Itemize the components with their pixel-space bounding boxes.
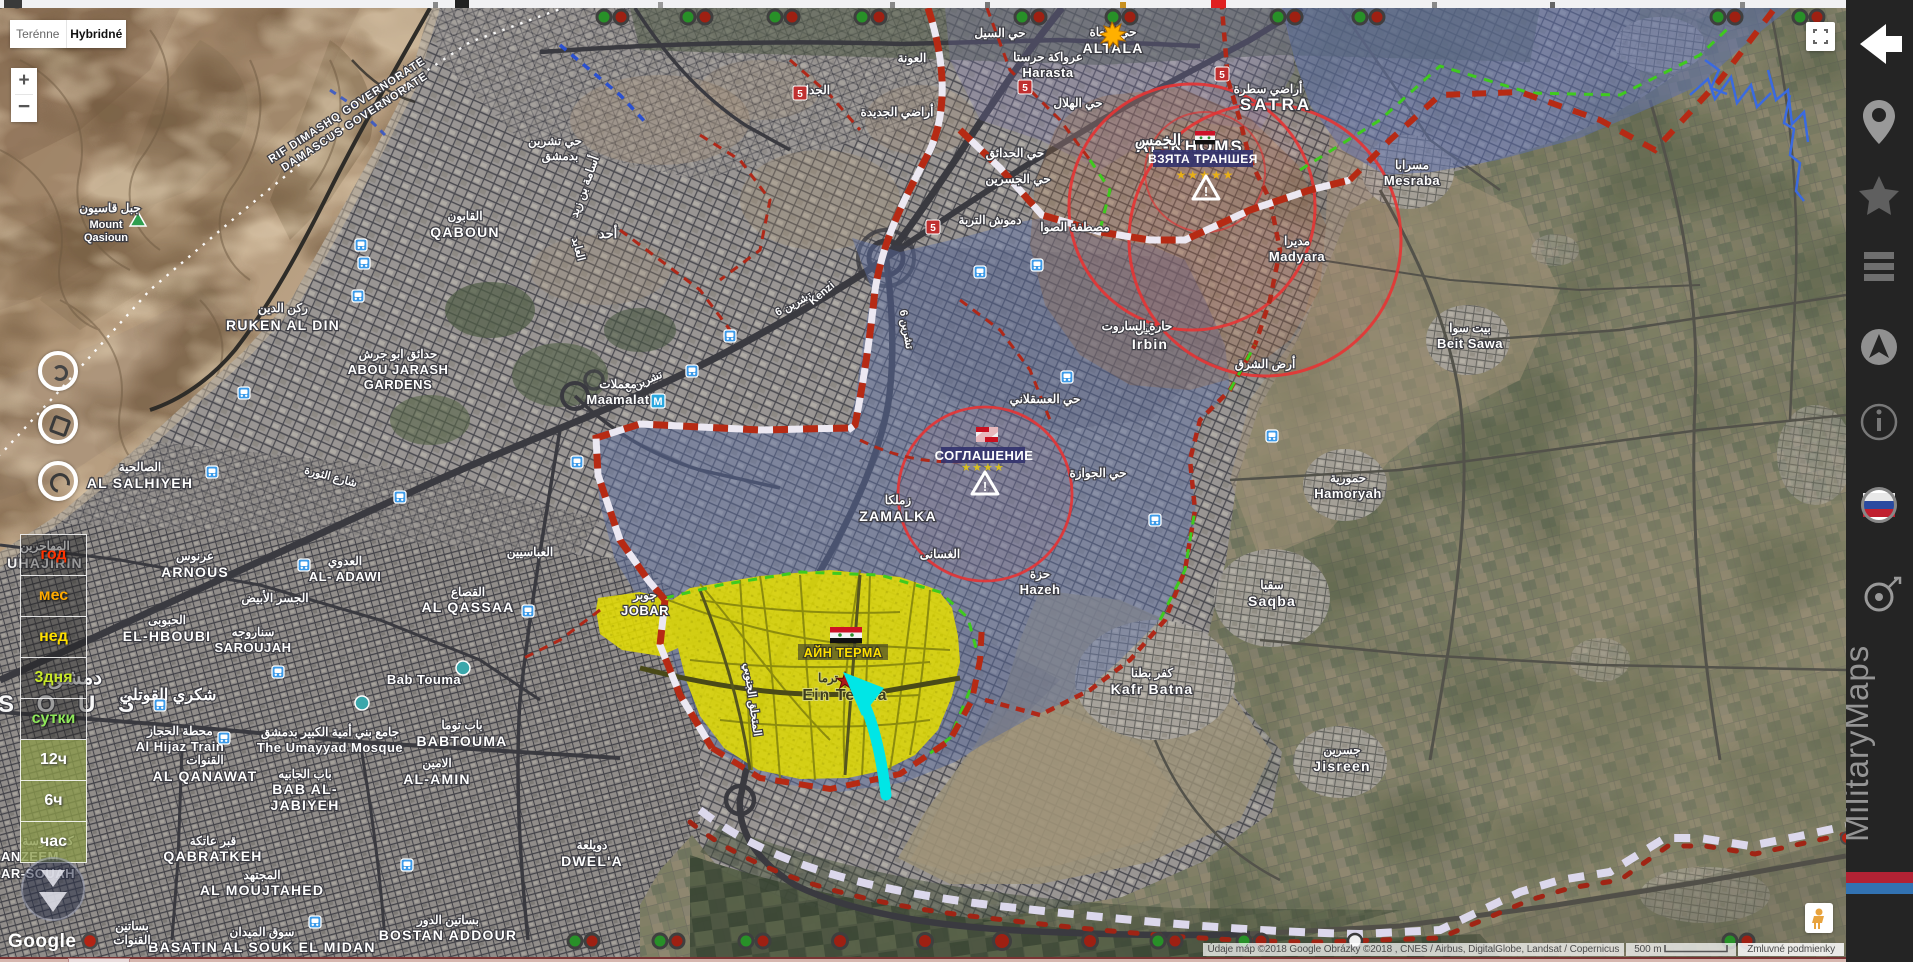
svg-text:★★★★: ★★★★ — [961, 462, 1004, 474]
svg-text:القصاع: القصاع — [451, 585, 485, 600]
svg-text:بساتين الدور: بساتين الدور — [416, 913, 479, 928]
svg-text:BAB AL-: BAB AL- — [272, 781, 337, 797]
svg-text:العونة: العونة — [898, 51, 927, 66]
svg-text:ركن الدين: ركن الدين — [258, 301, 308, 316]
svg-text:EL-HBOUBI: EL-HBOUBI — [123, 628, 212, 644]
svg-text:حزة: حزة — [1030, 567, 1050, 582]
svg-text:AL QANAWAT: AL QANAWAT — [153, 768, 258, 784]
svg-text:العباسيين: العباسيين — [507, 545, 554, 560]
svg-text:عرنوس: عرنوس — [176, 549, 214, 564]
svg-text:Saqba: Saqba — [1248, 593, 1296, 609]
svg-text:MilitaryMaps: MilitaryMaps — [1846, 645, 1875, 842]
svg-text:Mesraba: Mesraba — [1384, 173, 1441, 188]
svg-text:الخمس: الخمس — [1135, 132, 1181, 149]
svg-text:QABRATKEH: QABRATKEH — [163, 848, 262, 864]
svg-text:RUKEN AL DIN: RUKEN AL DIN — [226, 317, 340, 333]
svg-text:حي العسقلاني: حي العسقلاني — [1010, 392, 1081, 407]
svg-text:جوبر: جوبر — [632, 588, 657, 603]
svg-text:Jisreen: Jisreen — [1313, 758, 1370, 774]
svg-text:AL- ADAWI: AL- ADAWI — [309, 569, 382, 584]
svg-text:الامين: الامين — [422, 756, 451, 771]
svg-text:5: 5 — [930, 223, 936, 234]
svg-text:كفر بطنا: كفر بطنا — [1131, 666, 1173, 681]
svg-text:ВЗЯТА ТРАНШЕЯ: ВЗЯТА ТРАНШЕЯ — [1148, 152, 1258, 166]
svg-text:Mount: Mount — [90, 219, 123, 231]
svg-text:СОГЛАШЕНИЕ: СОГЛАШЕНИЕ — [935, 448, 1034, 463]
svg-text:معملات: معملات — [599, 377, 637, 391]
svg-text:القنوات: القنوات — [113, 933, 151, 948]
svg-text:Maamalat: Maamalat — [586, 392, 649, 407]
svg-text:AL SALHIYEH: AL SALHIYEH — [87, 475, 193, 491]
svg-text:ARNOUS: ARNOUS — [161, 564, 229, 580]
svg-text:حدائق ابو جرش: حدائق ابو جرش — [359, 347, 438, 362]
svg-text:أحد: أحد — [599, 225, 618, 241]
svg-text:مديرا: مديرا — [1284, 234, 1310, 249]
svg-text:حي السيل: حي السيل — [974, 26, 1025, 41]
svg-text:!: ! — [1204, 184, 1208, 199]
svg-text:أرض الشرق: أرض الشرق — [1235, 356, 1296, 372]
svg-text:ABOU JARASH: ABOU JARASH — [348, 362, 449, 377]
svg-text:AL QASSAA: AL QASSAA — [422, 599, 515, 615]
svg-text:بساتين: بساتين — [115, 919, 149, 934]
svg-text:ZAMALKA: ZAMALKA — [859, 508, 937, 524]
svg-text:BABTOUMA: BABTOUMA — [416, 733, 507, 749]
svg-text:SATRA: SATRA — [1240, 95, 1312, 114]
svg-text:Bab Touma: Bab Touma — [387, 672, 462, 687]
svg-text:سقبا: سقبا — [1260, 578, 1283, 592]
svg-text:القنوات: القنوات — [186, 753, 224, 768]
svg-text:حمورية: حمورية — [1330, 471, 1366, 486]
svg-text:5: 5 — [1022, 83, 1028, 94]
svg-text:المجتهد: المجتهد — [243, 868, 280, 883]
svg-text:AL MOUJTAHED: AL MOUJTAHED — [200, 882, 324, 898]
svg-text:دموش التربة: دموش التربة — [959, 213, 1022, 228]
svg-text:الغسانى: الغسانى — [920, 547, 960, 561]
svg-text:Al Hijaz Train: Al Hijaz Train — [136, 739, 225, 754]
svg-text:الصالحية: الصالحية — [119, 460, 162, 474]
svg-text:محطة الحجاز: محطة الحجاز — [146, 724, 213, 739]
svg-text:الجسر الأبيض: الجسر الأبيض — [241, 590, 308, 606]
svg-text:أراضي سطرة: أراضي سطرة — [1234, 81, 1303, 97]
svg-text:جامع بني أمية الكبير بدمشق: جامع بني أمية الكبير بدمشق — [261, 724, 399, 740]
svg-text:DWEL'A: DWEL'A — [561, 853, 623, 869]
svg-text:جسرين: جسرين — [1323, 743, 1360, 758]
svg-text:حارة الساروت: حارة الساروت — [1102, 319, 1173, 334]
svg-text:حي الحدائق: حي الحدائق — [986, 146, 1044, 161]
svg-text:دويلعة: دويلعة — [577, 838, 608, 853]
svg-text:АЙН ТЕРМА: АЙН ТЕРМА — [804, 645, 883, 660]
svg-text:حي تشرين: حي تشرين — [528, 134, 582, 149]
svg-text:Madyara: Madyara — [1269, 249, 1326, 264]
svg-text:GARDENS: GARDENS — [364, 377, 433, 392]
svg-text:Qasioun: Qasioun — [84, 232, 128, 244]
svg-text:M: M — [653, 396, 662, 408]
svg-text:JABIYEH: JABIYEH — [270, 797, 339, 813]
svg-text:Harasta: Harasta — [1022, 65, 1073, 80]
svg-text:باب الجابيه: باب الجابيه — [278, 767, 331, 781]
svg-text:زملكا: زملكا — [885, 493, 912, 508]
svg-text:جبل قاسيون: جبل قاسيون — [79, 201, 141, 216]
svg-text:JOBAR: JOBAR — [621, 603, 669, 618]
svg-text:AL-AMIN: AL-AMIN — [403, 771, 471, 787]
svg-text:Kafr Batna: Kafr Batna — [1111, 681, 1194, 697]
svg-text:5: 5 — [1219, 70, 1225, 81]
svg-text:BASATIN AL SOUK EL MIDAN: BASATIN AL SOUK EL MIDAN — [148, 939, 375, 955]
svg-text:Hamoryah: Hamoryah — [1314, 486, 1382, 501]
svg-text:العدوي: العدوي — [328, 554, 362, 569]
svg-text:عرواكة حرستا: عرواكة حرستا — [1013, 50, 1083, 65]
svg-text:شكري القوتلي: شكري القوتلي — [120, 687, 217, 705]
svg-text:BOSTAN ADDOUR: BOSTAN ADDOUR — [379, 927, 517, 943]
svg-text:حي الجسرين: حي الجسرين — [985, 172, 1050, 187]
svg-text:مصطفة الصوا: مصطفة الصوا — [1040, 220, 1109, 235]
svg-text:بدمشق: بدمشق — [542, 149, 579, 164]
svg-text:قبر عاتكة: قبر عاتكة — [190, 834, 237, 849]
svg-text:حي الهلال: حي الهلال — [1053, 96, 1102, 111]
svg-text:5: 5 — [797, 89, 803, 100]
svg-text:مسرابا: مسرابا — [1395, 158, 1429, 173]
svg-text:باب توما: باب توما — [441, 718, 482, 733]
svg-text:القابون: القابون — [447, 209, 482, 224]
svg-text:!: ! — [983, 479, 987, 494]
svg-text:حي الجوازة: حي الجوازة — [1069, 466, 1126, 481]
svg-text:سوق الميدان: سوق الميدان — [230, 925, 295, 940]
svg-text:Beit Sawa: Beit Sawa — [1437, 336, 1503, 351]
svg-text:سناروجه: سناروجه — [232, 625, 275, 640]
svg-text:Hazeh: Hazeh — [1020, 582, 1061, 597]
svg-text:SAROUJAH: SAROUJAH — [215, 640, 292, 655]
svg-text:Irbin: Irbin — [1132, 336, 1168, 352]
svg-text:بيت سوا: بيت سوا — [1449, 321, 1491, 336]
svg-text:الحبوبى: الحبوبى — [148, 613, 186, 628]
svg-text:The Umayyad Mosque: The Umayyad Mosque — [257, 740, 403, 755]
svg-text:QABOUN: QABOUN — [430, 224, 499, 240]
svg-text:أراضي الجديدة: أراضي الجديدة — [861, 104, 934, 120]
